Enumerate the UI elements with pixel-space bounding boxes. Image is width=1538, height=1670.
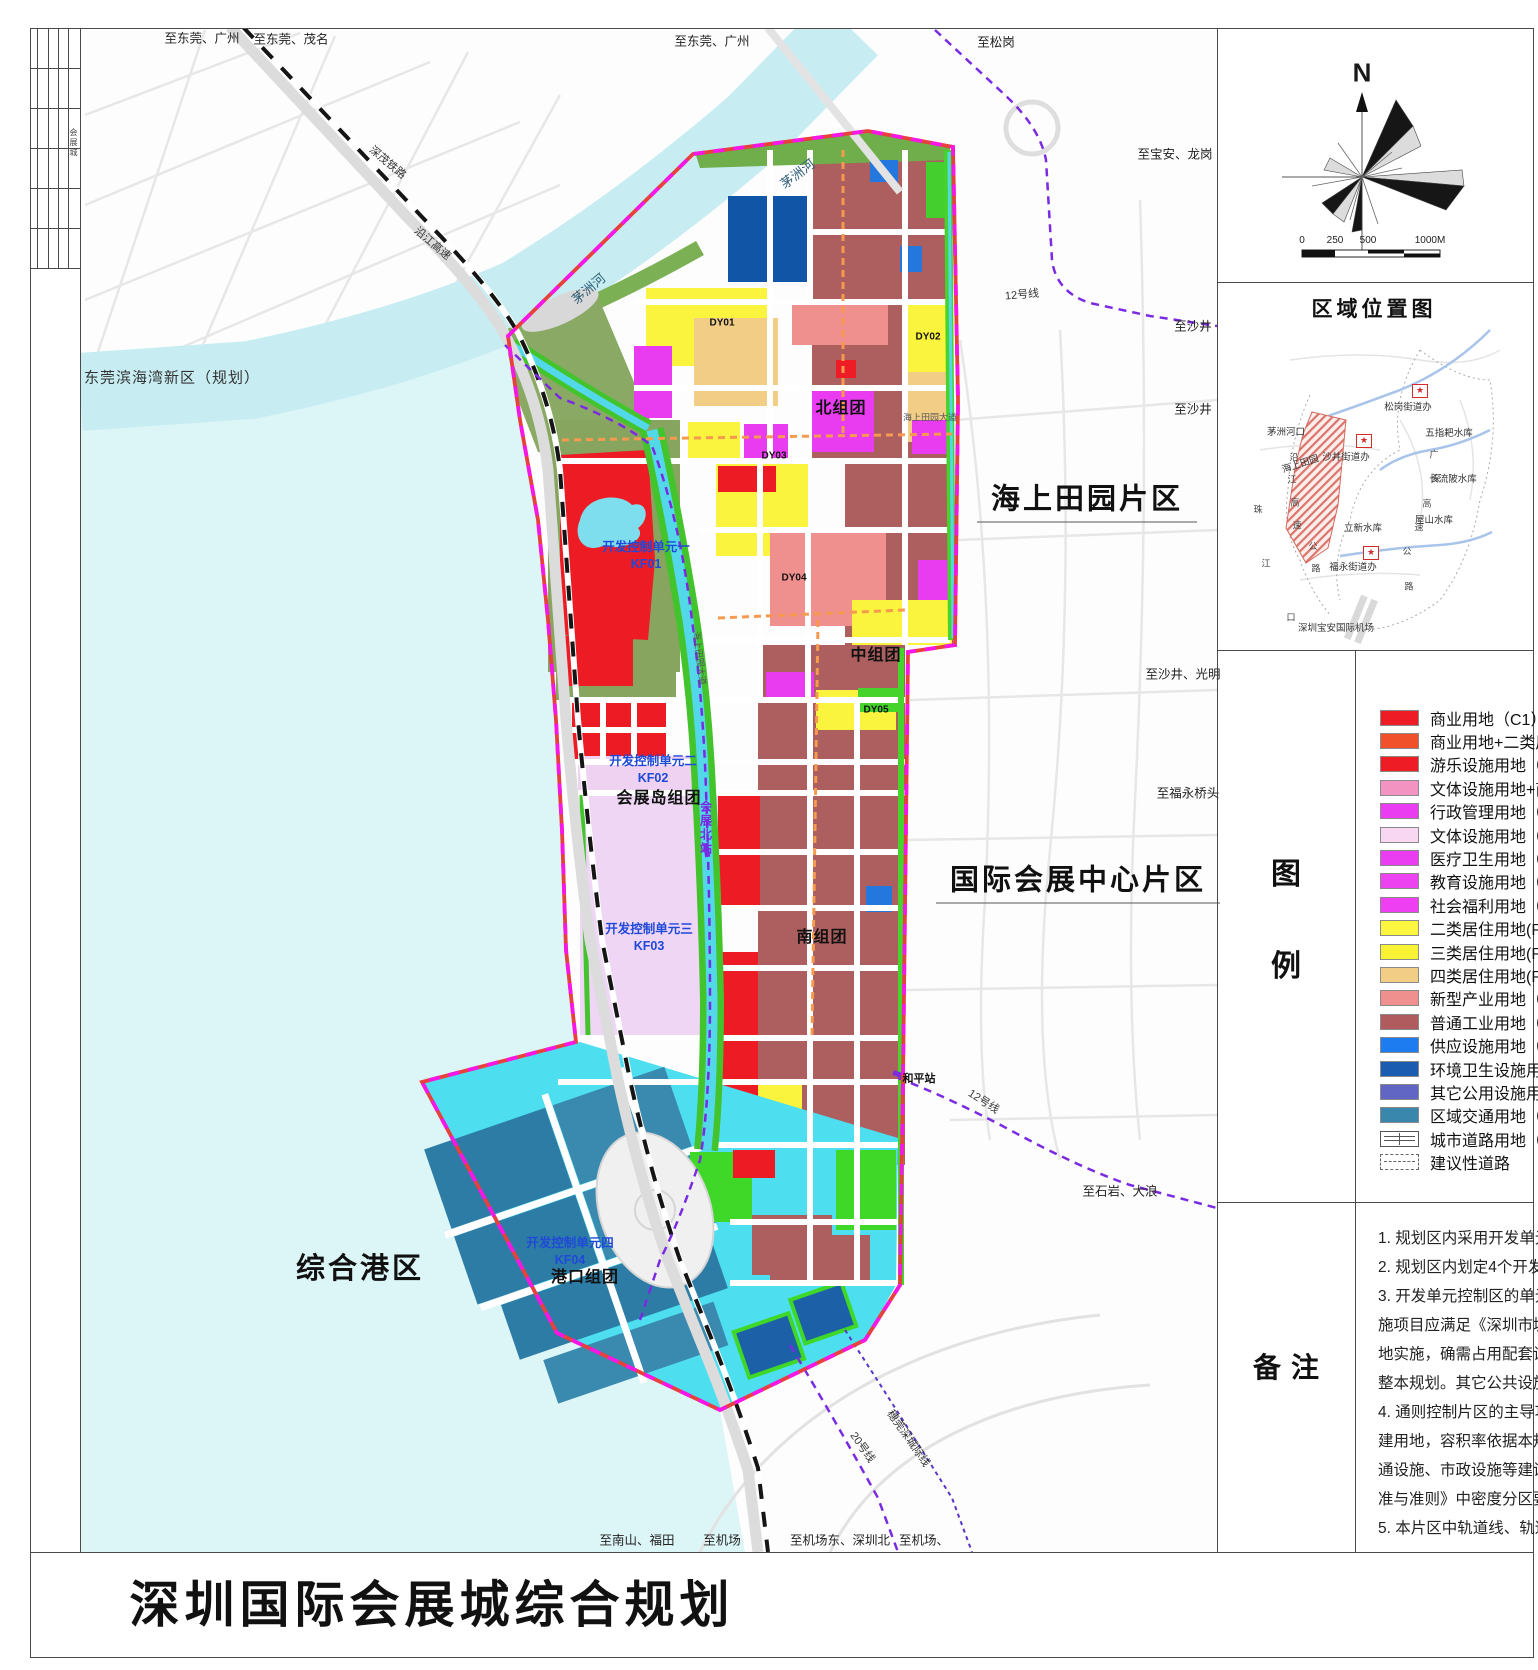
- note-line: 4. 通则控制片区的主导功能为现状保留及改: [1378, 1398, 1538, 1427]
- legend-item: 供应设施用地（U1）: [1380, 1033, 1538, 1056]
- map-label: 会展岛组团: [616, 784, 701, 808]
- scale-tick-0: 0: [1299, 235, 1305, 246]
- legend-item: 教育设施用地（GIC5）: [1380, 870, 1538, 893]
- legend-item-label: 新型产业用地（M0）: [1430, 986, 1538, 1010]
- title-block-side-text: 会展城: [69, 128, 79, 158]
- legend-item: 新型产业用地（M0）: [1380, 987, 1538, 1010]
- legend-item-label: 文体设施用地+商业用地（GIC2+C1）: [1430, 776, 1538, 800]
- legend-color-swatch: [1380, 897, 1419, 913]
- panel-section-line-2: [1217, 650, 1533, 651]
- legend-road-symbol: [1380, 1131, 1419, 1147]
- legend-item-label: 社会福利用地（GIC7）: [1430, 893, 1538, 917]
- map-label: 至东莞、茂名: [253, 29, 328, 48]
- legend-section-label: 图例: [1271, 849, 1301, 985]
- legend-item: 二类居住用地(R2): [1380, 917, 1538, 940]
- legend-item-label: 医疗卫生用地（GIC4）: [1430, 846, 1538, 870]
- legend-color-swatch: [1380, 1107, 1419, 1123]
- legend-item: 医疗卫生用地（GIC4）: [1380, 846, 1538, 869]
- inset-map-label: 茅洲河口: [1267, 424, 1305, 438]
- map-label: DY04: [781, 573, 806, 584]
- notes-text: 1. 规划区内采用开发单元控制与通则控制两种方式。2. 规划区内划定4个开发单元…: [1378, 1224, 1538, 1543]
- inset-map-label: 高: [1422, 497, 1431, 510]
- note-line: 3. 开发单元控制区的单元内公共配套设: [1378, 1282, 1538, 1311]
- note-line: 建用地，容积率依据本规划确定；公共服务设施、交: [1378, 1427, 1538, 1456]
- inset-map-label: 深: [1431, 472, 1440, 485]
- legend-item: 文体设施用地+商业用地（GIC2+C1）: [1380, 776, 1538, 799]
- note-line: 通设施、市政设施等建设标准按照《深圳市城市规划标: [1378, 1456, 1538, 1485]
- legend-list: 商业用地（C1）商业用地+二类居住用地（C1+R2）游乐设施用地（C5）文体设施…: [1380, 706, 1538, 1174]
- notes-section-label: 备注: [1253, 1346, 1329, 1386]
- legend-color-swatch: [1380, 990, 1419, 1006]
- map-label: 至福永桥头: [1157, 783, 1220, 802]
- north-label: N: [1353, 58, 1372, 89]
- map-label: 至东莞、广州: [164, 28, 239, 47]
- street-office-star-icon: ★: [1363, 546, 1379, 560]
- legend-color-swatch: [1380, 780, 1419, 796]
- map-label: 开发控制单元三 KF03: [605, 921, 693, 955]
- legend-item-label: 行政管理用地（GIC1）: [1430, 799, 1538, 823]
- legend-item-label: 区域交通用地（S1）: [1430, 1103, 1538, 1127]
- legend-item: 城市道路用地（S2）: [1380, 1127, 1538, 1150]
- scale-bar: [1302, 250, 1440, 257]
- inset-map-label: 广: [1429, 448, 1438, 461]
- legend-suggested-road-symbol: [1380, 1154, 1419, 1170]
- note-line: 整本规划。其它公共设施可结合开发建设实施。: [1378, 1369, 1538, 1398]
- inset-map-label: 高: [1290, 496, 1299, 509]
- inset-map-label: 路: [1404, 580, 1413, 593]
- note-line: 施项目应满足《深圳市城市规划标准与准则》要求，落: [1378, 1311, 1538, 1340]
- legend-item-label: 普通工业用地（M1）: [1430, 1010, 1538, 1034]
- scale-tick-250: 250: [1327, 235, 1344, 246]
- compass-rose-icon: [1282, 92, 1464, 252]
- legend-color-swatch: [1380, 1037, 1419, 1053]
- map-label: 至机场东、深圳北: [790, 1530, 890, 1549]
- legend-label-char: 图: [1271, 849, 1301, 893]
- inset-map-label: 速: [1292, 519, 1301, 532]
- legend-item-label: 教育设施用地（GIC5）: [1430, 869, 1538, 893]
- map-label: DY05: [863, 705, 888, 716]
- legend-item-label: 二类居住用地(R2): [1430, 916, 1538, 940]
- legend-item-label: 游乐设施用地（C5）: [1430, 752, 1538, 776]
- legend-color-swatch: [1380, 1014, 1419, 1030]
- legend-item-label: 城市道路用地（S2）: [1430, 1127, 1538, 1151]
- map-label: DY03: [761, 451, 786, 462]
- title-block-line: [30, 68, 80, 69]
- legend-item-label: 四类居住用地(R4): [1430, 963, 1538, 987]
- inset-map-label: 公: [1308, 540, 1317, 553]
- map-label: 综合港区: [296, 1245, 424, 1287]
- inset-map-label: 口: [1286, 611, 1295, 624]
- legend-item-label: 三类居住用地(R3): [1430, 940, 1538, 964]
- note-line: 1. 规划区内采用开发单元控制与通则控制两种方式。: [1378, 1224, 1538, 1253]
- map-label: 12号线: [1004, 285, 1040, 304]
- panel-section-line-1: [1217, 282, 1533, 283]
- map-label: 开发控制单元一 KF01: [602, 539, 690, 573]
- legend-color-swatch: [1380, 733, 1419, 749]
- panel-label-column-divider: [1355, 650, 1356, 1552]
- street-office-star-icon: ★: [1412, 384, 1428, 398]
- inset-map-label: 公: [1402, 545, 1411, 558]
- legend-color-swatch: [1380, 920, 1419, 936]
- legend-item-label: 供应设施用地（U1）: [1430, 1033, 1538, 1057]
- map-label: 至机场: [703, 1530, 741, 1549]
- note-line: 地实施，确需占用配套设施用地的，应调: [1378, 1340, 1538, 1369]
- legend-color-swatch: [1380, 1084, 1419, 1100]
- legend-item: 社会福利用地（GIC7）: [1380, 893, 1538, 916]
- map-label: DY01: [709, 318, 734, 329]
- map-label: 至宝安、龙岗: [1137, 144, 1212, 163]
- legend-item-label: 其它公用设施用地（U9）: [1430, 1080, 1538, 1104]
- inset-map-label: 沿: [1289, 451, 1298, 464]
- street-office-star-icon: ★: [1356, 434, 1372, 448]
- map-label: 至东莞、广州: [674, 31, 749, 50]
- legend-label-char: 例: [1271, 941, 1301, 985]
- sheet-border-bottom: [30, 1657, 1534, 1658]
- legend-color-swatch: [1380, 1061, 1419, 1077]
- legend-item: 行政管理用地（GIC1）: [1380, 800, 1538, 823]
- map-label: 国际会展中心片区: [936, 857, 1220, 904]
- legend-item: 区域交通用地（S1）: [1380, 1104, 1538, 1127]
- legend-color-swatch: [1380, 710, 1419, 726]
- legend-item: 建议性道路: [1380, 1150, 1538, 1173]
- note-line: 准与准则》中密度分区要求执行。: [1378, 1485, 1538, 1514]
- map-label: 至松岗: [977, 32, 1015, 51]
- map-label: 东莞滨海湾新区（规划）: [84, 367, 260, 388]
- legend-item-label: 环境卫生设施用地（U3）: [1430, 1057, 1538, 1081]
- panel-section-line-3: [1217, 1202, 1533, 1203]
- legend-item: 四类居住用地(R4): [1380, 963, 1538, 986]
- map-label: 海上田园片区: [977, 476, 1197, 523]
- legend-item: 环境卫生设施用地（U3）: [1380, 1057, 1538, 1080]
- plan-sheet: 会展城 N 0 250 500 1000M 区域位置图 图例 备注 商业用地（C…: [0, 0, 1538, 1670]
- legend-item: 商业用地（C1）: [1380, 706, 1538, 729]
- inset-map-label: 珠: [1253, 503, 1262, 516]
- note-line: 5. 本片区中轨道线、轨道站点位置以最终批复为准。: [1378, 1514, 1538, 1543]
- sheet-border-left: [30, 28, 31, 1658]
- map-label: 至南山、福田: [599, 1530, 674, 1549]
- legend-color-swatch: [1380, 756, 1419, 772]
- legend-color-swatch: [1380, 944, 1419, 960]
- map-frame-left: [80, 28, 81, 1552]
- inset-map-label: 福永街道办: [1329, 559, 1377, 573]
- legend-color-swatch: [1380, 850, 1419, 866]
- map-label: 至沙井、光明: [1145, 664, 1220, 683]
- map-label: 至沙井: [1174, 399, 1212, 418]
- legend-item: 文体设施用地（GIC2）: [1380, 823, 1538, 846]
- inset-map-label: 深圳宝安国际机场: [1298, 620, 1374, 634]
- legend-item: 三类居住用地(R3): [1380, 940, 1538, 963]
- title-block-line: [30, 188, 80, 189]
- legend-item-label: 建议性道路: [1430, 1150, 1510, 1174]
- scale-tick-1000: 1000M: [1415, 235, 1446, 246]
- map-label: 至沙井: [1174, 316, 1212, 335]
- legend-color-swatch: [1380, 827, 1419, 843]
- legend-item-label: 商业用地（C1）: [1430, 706, 1538, 730]
- legend-item: 普通工业用地（M1）: [1380, 1010, 1538, 1033]
- map-label: DY02: [915, 332, 940, 343]
- legend-item: 商业用地+二类居住用地（C1+R2）: [1380, 729, 1538, 752]
- map-label: 开发控制单元二 KF02: [609, 753, 697, 787]
- legend-color-swatch: [1380, 967, 1419, 983]
- map-label: 至机场、: [899, 1530, 949, 1549]
- legend-item-label: 文体设施用地（GIC2）: [1430, 823, 1538, 847]
- inset-map-label: 五指耙水库: [1425, 425, 1473, 439]
- inset-map-label: 江: [1261, 557, 1270, 570]
- note-line: 2. 规划区内划定4个开发单元控制区。: [1378, 1253, 1538, 1282]
- map-label: 至石岩、大浪: [1082, 1181, 1157, 1200]
- title-block-line: [30, 228, 80, 229]
- map-label: 北组团: [815, 394, 866, 418]
- legend-color-swatch: [1380, 873, 1419, 889]
- inset-map-label: 江: [1287, 473, 1296, 486]
- title-block-line: [30, 108, 80, 109]
- inset-map-label: 立新水库: [1344, 520, 1382, 534]
- map-label: 海上田园大道: [903, 411, 957, 424]
- map-label: 中组团: [850, 641, 901, 665]
- legend-item: 游乐设施用地（C5）: [1380, 753, 1538, 776]
- sheet-title: 深圳国际会展城综合规划: [130, 1565, 735, 1637]
- scale-tick-500: 500: [1360, 235, 1377, 246]
- map-frame-bottom: [30, 1552, 1534, 1553]
- legend-item: 其它公用设施用地（U9）: [1380, 1080, 1538, 1103]
- inset-map-label: 速: [1414, 521, 1423, 534]
- inset-map-label: 沙井街道办: [1322, 449, 1370, 463]
- inset-map-label: 路: [1311, 562, 1320, 575]
- inset-map: [1260, 330, 1500, 644]
- map-label: 和平站: [903, 1070, 936, 1086]
- legend-item-label: 商业用地+二类居住用地（C1+R2）: [1430, 729, 1538, 753]
- legend-color-swatch: [1380, 803, 1419, 819]
- map-label: 开发控制单元四 KF04: [526, 1235, 614, 1269]
- map-label: 南组团: [796, 923, 847, 947]
- map-graphics: [0, 0, 1538, 1670]
- map-label: 会展北站: [698, 800, 715, 856]
- location-map-title: 区域位置图: [1312, 293, 1437, 323]
- title-block-line: [30, 268, 80, 269]
- inset-map-label: 松岗街道办: [1384, 399, 1432, 413]
